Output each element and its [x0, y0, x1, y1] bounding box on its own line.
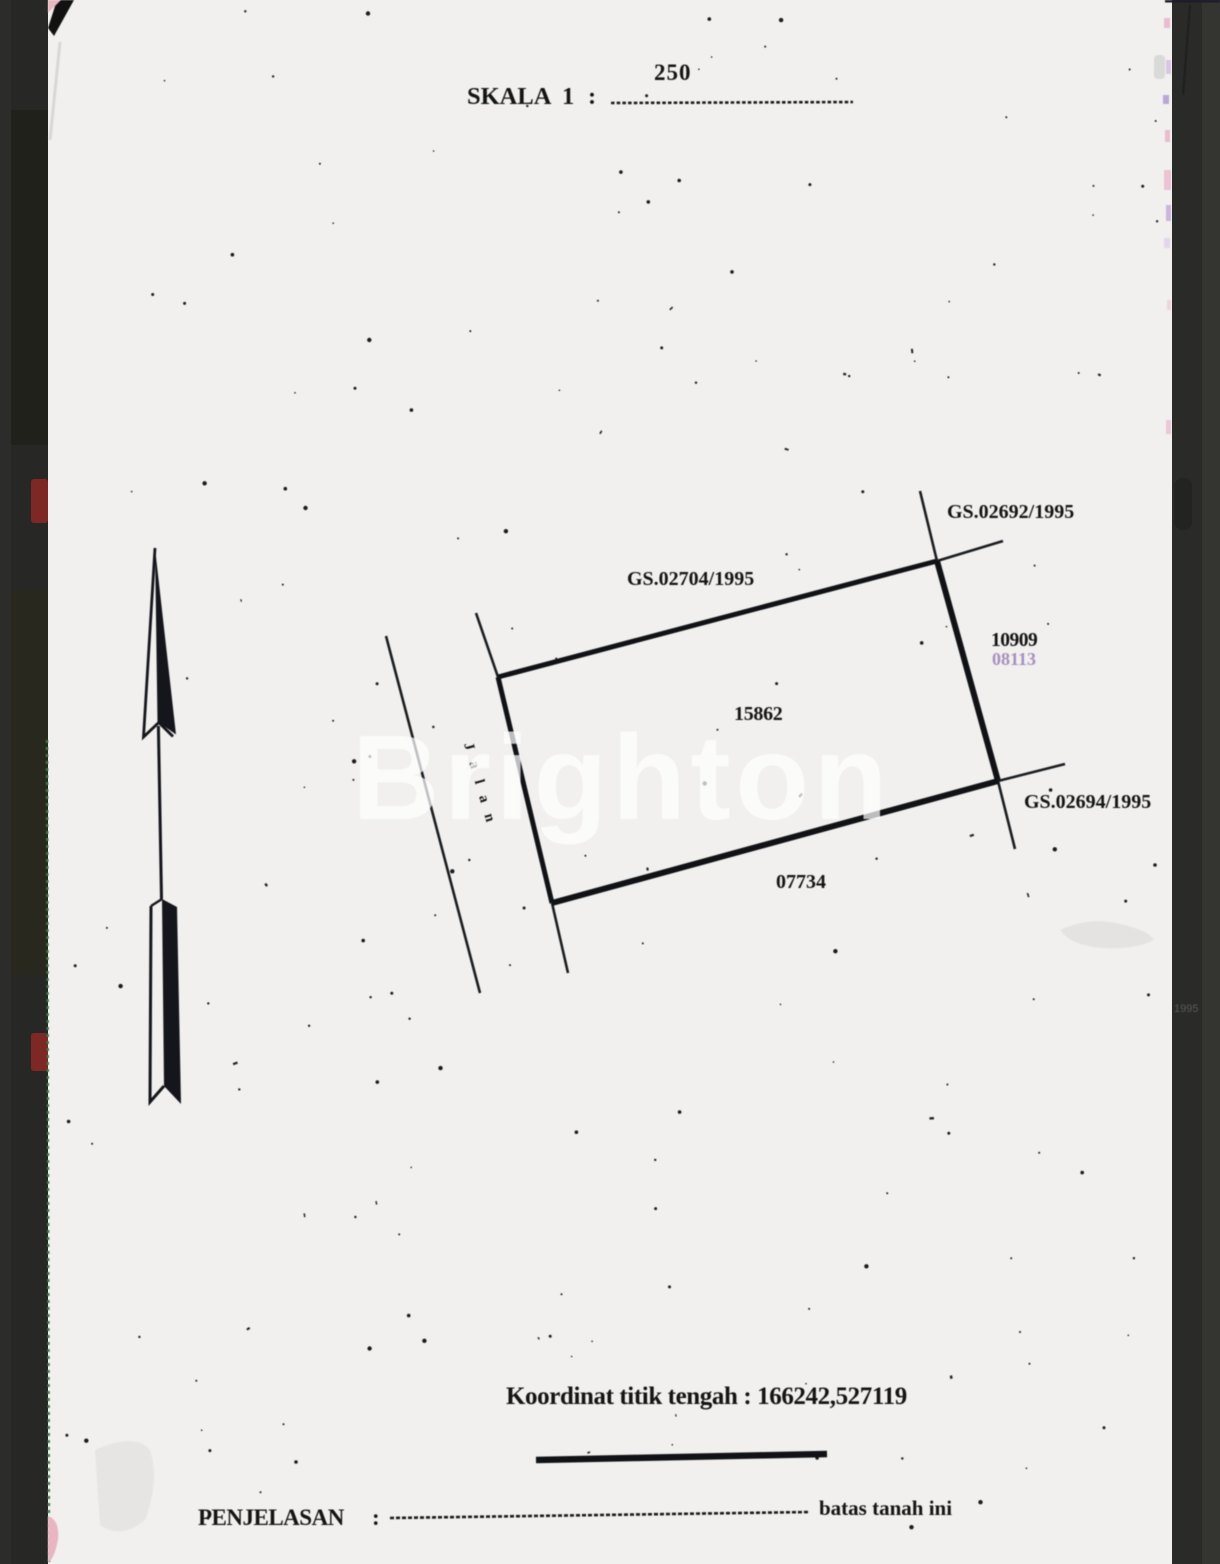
svg-text:Koordinat titik tengah : 16624: Koordinat titik tengah : 166242,527119 [506, 1383, 907, 1410]
svg-text:GS.02694/1995: GS.02694/1995 [1024, 791, 1151, 813]
svg-text:07734: 07734 [776, 871, 826, 893]
svg-text:GS.02692/1995: GS.02692/1995 [947, 501, 1074, 523]
svg-text:PENJELASAN:: PENJELASAN: [198, 1505, 379, 1530]
svg-text:10909: 10909 [991, 630, 1038, 651]
svg-text:1995: 1995 [1174, 1003, 1198, 1015]
svg-text:batas tanah ini: batas tanah ini [819, 1496, 952, 1520]
svg-text:SKALA1:: SKALA1: [467, 83, 596, 110]
svg-text:08113: 08113 [992, 649, 1036, 669]
svg-text:Brighton: Brighton [352, 709, 892, 845]
svg-text:250: 250 [654, 60, 692, 85]
svg-text:GS.02704/1995: GS.02704/1995 [627, 568, 754, 590]
